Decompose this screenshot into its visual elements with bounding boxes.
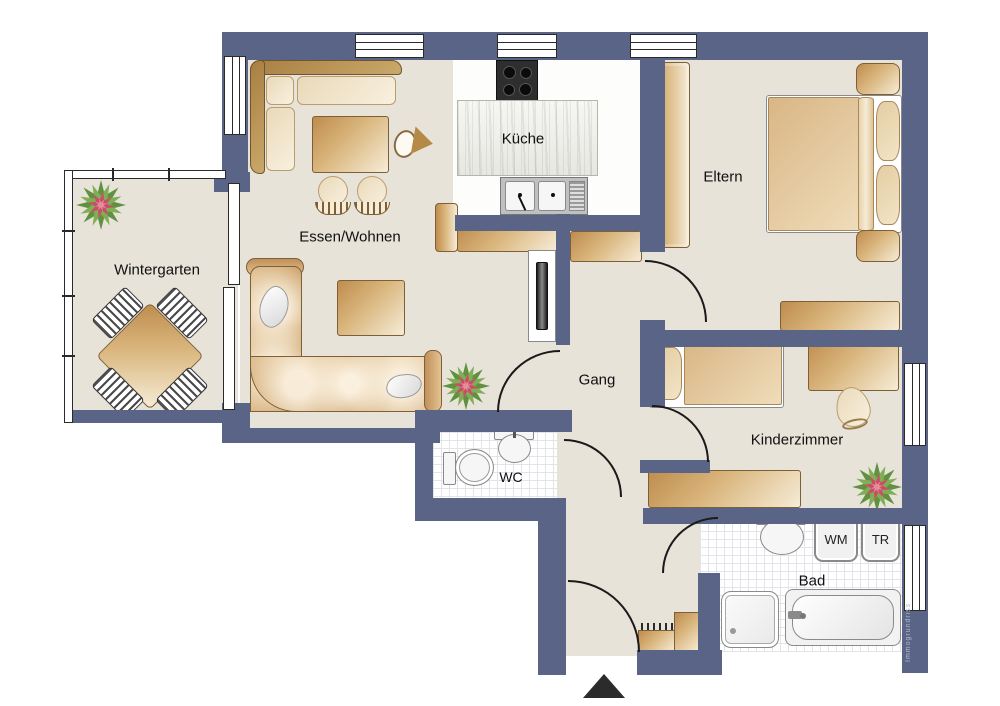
glass-wall	[223, 287, 235, 410]
sideboard	[648, 470, 801, 508]
room-label-eltern: Eltern	[703, 169, 742, 186]
watermark: Immogrundriss	[905, 612, 912, 662]
kitchen-sink	[500, 177, 588, 215]
nightstand	[856, 230, 900, 262]
plant-icon	[852, 462, 902, 512]
tv-screen	[536, 262, 548, 330]
room-label-kueche: Küche	[502, 131, 545, 148]
coffee-table	[337, 280, 405, 336]
sideboard	[780, 301, 900, 331]
wall	[556, 214, 570, 345]
single-bed-blanket	[684, 341, 782, 405]
wall	[455, 215, 642, 231]
shoe-rack	[638, 630, 676, 652]
glass-mullion	[168, 168, 170, 181]
window	[630, 34, 697, 58]
wall	[698, 573, 720, 673]
corner-bench-back	[250, 60, 402, 75]
window	[904, 525, 926, 611]
wall	[248, 428, 440, 443]
corner-bench-seat	[266, 76, 294, 105]
glass-mullion	[62, 230, 75, 232]
sideboard	[570, 231, 642, 262]
shower	[721, 591, 779, 648]
plant-icon	[442, 362, 490, 410]
room-label-wc: WC	[499, 469, 522, 485]
wall	[415, 410, 572, 432]
entrance-arrow-icon	[583, 674, 625, 698]
wall	[64, 410, 230, 423]
glass-wall	[64, 170, 226, 179]
dryer-label: TR	[872, 532, 889, 547]
wall	[222, 32, 928, 60]
room-label-essen-wohnen: Essen/Wohnen	[299, 229, 400, 246]
dining-table	[312, 116, 389, 173]
corner-bench-seat	[266, 107, 295, 171]
shoe-rack-step	[674, 612, 700, 652]
floor-plan: WM TR	[0, 0, 1000, 706]
window	[355, 34, 424, 58]
plant-icon	[76, 180, 126, 230]
toilet-bowl	[455, 449, 494, 486]
corner-bench-seat	[297, 76, 396, 105]
stove	[496, 60, 538, 103]
room-label-bad: Bad	[799, 573, 826, 590]
washing-machine-label: WM	[824, 532, 847, 547]
room-label-kinderzimmer: Kinderzimmer	[751, 432, 844, 449]
bathtub	[785, 589, 901, 646]
room-label-wintergarten: Wintergarten	[114, 262, 200, 279]
bed-pillow	[876, 101, 900, 161]
glass-mullion	[62, 355, 75, 357]
window	[904, 363, 926, 446]
glass-mullion	[62, 295, 75, 297]
wall	[538, 521, 566, 675]
glass-wall	[228, 183, 240, 285]
glass-mullion	[112, 168, 114, 181]
corner-bench-back	[250, 60, 265, 174]
bed-pillow	[876, 165, 900, 225]
nightstand	[856, 63, 900, 95]
double-bed-fold	[858, 97, 874, 231]
room-label-gang: Gang	[579, 372, 616, 389]
wall	[643, 330, 902, 347]
rack-hooks	[641, 623, 675, 630]
window	[224, 56, 246, 135]
sofa-armrest	[424, 350, 442, 412]
wall	[640, 58, 665, 252]
window	[497, 34, 557, 58]
wall	[643, 508, 902, 524]
wall	[415, 498, 566, 521]
double-bed-blanket	[768, 97, 860, 231]
bath-sink-bowl	[760, 519, 804, 555]
wc-sink-bowl	[498, 434, 531, 463]
